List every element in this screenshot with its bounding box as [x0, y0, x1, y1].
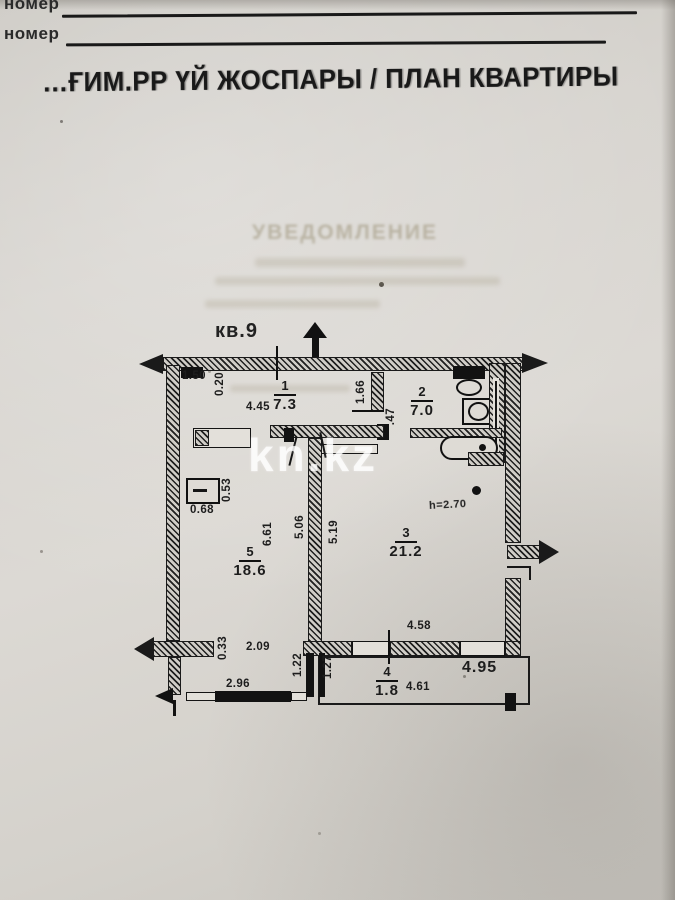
wall-right-upper: [505, 363, 521, 543]
kitchen-sink-icon: [195, 430, 209, 446]
blank-line-2: [66, 41, 606, 46]
bleedthrough-bar: [205, 300, 380, 308]
room-area: 18.6: [228, 562, 272, 579]
dim-label: .47: [385, 408, 397, 425]
field-label-number-2: номер: [4, 24, 59, 44]
wall-step-line: [529, 566, 531, 580]
wall-bottom: [390, 641, 460, 656]
window: [186, 692, 216, 701]
balcony-door-arrow-icon: [507, 545, 541, 559]
watermark: kn.kz: [248, 428, 378, 482]
blank-line-1: [62, 11, 637, 18]
wall-stub: [306, 653, 314, 697]
dim-label: 2.09: [246, 641, 270, 653]
dimension-tick: [276, 346, 278, 380]
room-area: 1.8: [370, 682, 404, 699]
vent-arrow-icon: [152, 641, 214, 657]
dim-label: 4.58: [407, 620, 431, 632]
page-title: …ҒИМ.РР ҮЙ ЖОСПАРЫ / ПЛАН КВАРТИРЫ: [42, 60, 619, 99]
room-number: 1: [274, 379, 295, 396]
room-number: 4: [376, 665, 397, 682]
dim-label: 4.61: [406, 681, 430, 693]
dim-label: 1.22: [292, 653, 304, 677]
room-area: 21.2: [384, 543, 428, 560]
bleedthrough-text: УВЕДОМЛЕНИЕ: [252, 221, 438, 245]
toilet-icon: [453, 366, 485, 379]
ceiling-height-note: h=2.70: [429, 498, 467, 512]
wall-left-upper: [166, 365, 180, 641]
dim-label: 2.96: [226, 678, 250, 690]
scanned-floorplan-page: номер номер …ҒИМ.РР ҮЙ ЖОСПАРЫ / ПЛАН КВ…: [0, 0, 675, 900]
room-number: 3: [395, 526, 416, 543]
room-number: 5: [239, 545, 260, 562]
window: [460, 641, 505, 656]
room-number: 2: [411, 385, 432, 402]
window: [352, 641, 390, 656]
bleedthrough-bar: [255, 258, 465, 267]
section-arrow-left-icon: [139, 354, 163, 374]
field-label-number-1: номер: [4, 0, 59, 14]
dim-label: 5.06: [294, 515, 306, 539]
window-dark: [215, 691, 291, 702]
corner-arrow-icon: [173, 700, 176, 716]
room-area: 7.0: [404, 402, 440, 419]
wall-bottom-corner: [505, 641, 521, 656]
dim-label: 0.68: [190, 504, 214, 516]
room-area: 7.3: [268, 396, 302, 413]
corner-arrow-icon: [155, 688, 173, 704]
section-arrow-right-icon: [522, 353, 548, 373]
room-label-3: 3 21.2: [384, 524, 428, 560]
dim-label: 5.19: [328, 520, 340, 544]
vent-arrow-icon: [134, 637, 154, 661]
wall-stub: [505, 693, 516, 711]
wall-shaft-stub: [468, 452, 504, 466]
dim-label: 1.50: [182, 370, 206, 382]
scan-stain: [472, 486, 481, 495]
wall-step-line: [507, 566, 531, 568]
dim-label: 6.61: [262, 522, 274, 546]
room-label-1: 1 7.3: [268, 377, 302, 413]
scan-noise: [60, 120, 63, 123]
balcony-door-arrow-icon: [539, 540, 559, 564]
dim-label: 4.45: [246, 401, 270, 413]
entry-arrow-icon: [303, 322, 327, 338]
sink-icon: [468, 402, 489, 421]
room-label-5: 5 18.6: [228, 543, 272, 579]
dim-label: 0.20: [214, 372, 226, 396]
dim-label: 1.27: [322, 655, 334, 679]
dim-label: 0.33: [217, 636, 229, 660]
room-label-2: 2 7.0: [404, 383, 440, 419]
toilet-icon: [456, 379, 482, 396]
apartment-label: кв.9: [215, 320, 258, 343]
dim-label: 4.95: [462, 659, 497, 677]
window: [291, 692, 307, 701]
bleedthrough-bar: [215, 277, 500, 285]
bathtub-drain-icon: [479, 444, 486, 451]
room-label-4: 4 1.8: [370, 663, 404, 699]
wall-hallway: [371, 372, 384, 412]
dim-label: 0.53: [221, 478, 233, 502]
dimension-tick: [352, 410, 384, 412]
radiator: [193, 489, 207, 492]
scan-shadow-top: [0, 0, 675, 10]
scan-shadow-right: [661, 0, 675, 900]
dim-label: 1.66: [355, 380, 367, 404]
